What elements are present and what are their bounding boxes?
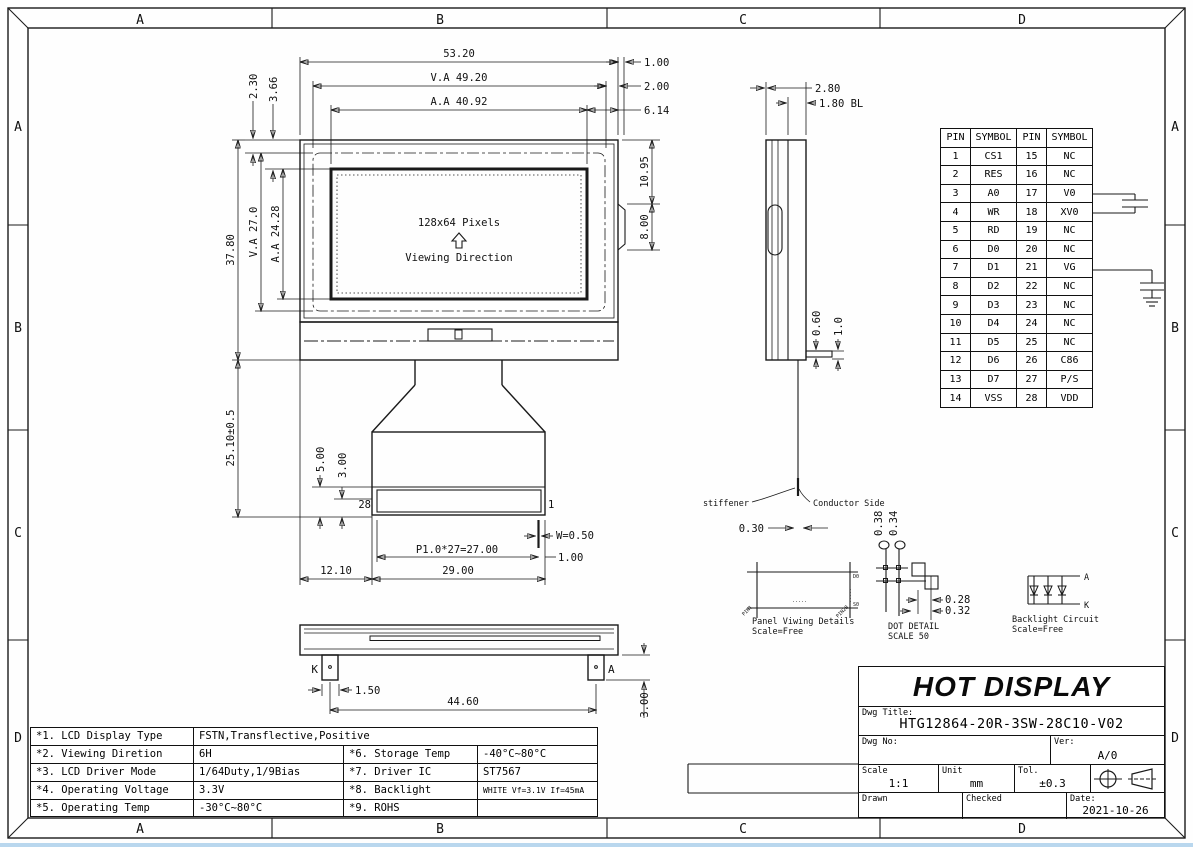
spec-value: FSTN,Transflective,Positive [194, 728, 598, 746]
table-row: 6D020NC [941, 240, 1093, 259]
table-cell: 11 [941, 333, 971, 352]
dim-3: 3.00 [337, 453, 349, 478]
symbol-header: SYMBOL [971, 129, 1017, 148]
table-cell: NC [1047, 221, 1093, 240]
table-cell: XV0 [1047, 203, 1093, 222]
spec-label: *2. Viewing Diretion [31, 745, 194, 763]
table-cell: 16 [1017, 166, 1047, 185]
zone-right-a: A [1171, 120, 1179, 135]
table-row: 8D222NC [941, 277, 1093, 296]
dim-fpc-length: 25.10±0.5 [225, 410, 237, 467]
table-cell: VG [1047, 259, 1093, 278]
table-cell: VSS [971, 389, 1017, 408]
spec-value: -30°C~80°C [194, 799, 344, 817]
table-cell: 14 [941, 389, 971, 408]
scale-label: Scale [862, 766, 888, 776]
panel-dots-bottom: ..... [792, 598, 807, 604]
backlight-circuit-scale: Scale=Free [1012, 625, 1063, 635]
table-cell: 10 [941, 314, 971, 333]
window-bottom-edge [0, 843, 1193, 847]
zone-top-b: B [436, 13, 444, 28]
title-block: HOT DISPLAY Dwg Title: HTG12864-20R-3SW-… [858, 666, 1165, 818]
zone-top-d: D [1018, 13, 1026, 28]
bottom-view: K A 1.50 44.60 3.00 [300, 625, 651, 718]
backlight-cathode-label: K [1084, 601, 1090, 611]
table-cell: NC [1047, 240, 1093, 259]
scale-value: 1:1 [859, 777, 938, 790]
date-value: 2021-10-26 [1067, 804, 1164, 817]
table-cell: NC [1047, 277, 1093, 296]
front-view: 128x64 Pixels Viewing Direction 53.20 1.… [225, 48, 669, 517]
dwg-no-row: Dwg No: Ver: A/0 [859, 736, 1164, 765]
table-cell: 24 [1017, 314, 1047, 333]
zone-bottom-d: D [1018, 822, 1026, 837]
table-row: 1CS115NC [941, 147, 1093, 166]
table-cell: NC [1047, 147, 1093, 166]
table-cell: 1 [941, 147, 971, 166]
zone-left-a: A [14, 120, 22, 135]
table-cell: D5 [971, 333, 1017, 352]
panel-detail-title: Panel Viwing Details [752, 617, 854, 627]
table-cell: NC [1047, 296, 1093, 315]
table-cell: D0 [971, 240, 1017, 259]
table-cell: 8 [941, 277, 971, 296]
tol-value: ±0.3 [1015, 777, 1090, 790]
projection-symbol-icon [1092, 766, 1162, 792]
pin-table-wires [1092, 194, 1164, 306]
pin-header: PIN [941, 129, 971, 148]
anode-label: A [608, 663, 615, 676]
table-cell: D3 [971, 296, 1017, 315]
panel-detail-scale: Scale=Free [752, 627, 803, 637]
table-cell: V0 [1047, 184, 1093, 203]
dim-w: W=0.50 [556, 530, 594, 542]
table-cell: 27 [1017, 370, 1047, 389]
zone-left-d: D [14, 731, 22, 746]
dim-pin-h: 3.00 [639, 692, 651, 717]
zone-left-b: B [14, 321, 22, 336]
panel-tag-bottom: S0 [853, 602, 859, 608]
table-cell: 15 [1017, 147, 1047, 166]
table-row: 9D323NC [941, 296, 1093, 315]
drawing-sheet: A B C D A B C D A B C D A B C D 128x64 P… [0, 0, 1193, 847]
title-block-stubs [688, 764, 858, 793]
table-cell: 12 [941, 352, 971, 371]
dim-pin: 1.50 [355, 685, 380, 697]
spec-label: *4. Operating Voltage [31, 781, 194, 799]
table-cell: 26 [1017, 352, 1047, 371]
zone-bottom-b: B [436, 822, 444, 837]
table-cell: 7 [941, 259, 971, 278]
fpc-connector: 28 1 5.00 3.00 W=0.50 P1.0*27=27.00 1.00… [300, 360, 594, 585]
backlight-circuit-title: Backlight Circuit [1012, 615, 1099, 625]
spec-value: 3.3V [194, 781, 344, 799]
table-cell: WR [971, 203, 1017, 222]
table-cell: 21 [1017, 259, 1047, 278]
dim-aa-height: A.A 24.28 [270, 206, 282, 263]
table-cell: 25 [1017, 333, 1047, 352]
viewing-direction-arrow-icon [452, 233, 466, 248]
specification-table: *1. LCD Display Type FSTN,Transflective,… [30, 727, 598, 817]
spec-value: ST7567 [478, 763, 598, 781]
table-row: 13D727P/S [941, 370, 1093, 389]
table-row: 2RES16NC [941, 166, 1093, 185]
spec-label: *9. ROHS [344, 799, 478, 817]
zone-bottom-a: A [136, 822, 144, 837]
zone-right-b: B [1171, 321, 1179, 336]
table-cell: NC [1047, 314, 1093, 333]
company-name-text: HOT DISPLAY [913, 671, 1110, 703]
spec-label: *3. LCD Driver Mode [31, 763, 194, 781]
table-cell: D1 [971, 259, 1017, 278]
zone-top-c: C [739, 13, 747, 28]
zone-bottom-c: C [739, 822, 747, 837]
table-cell: 2 [941, 166, 971, 185]
spec-row: *4. Operating Voltage 3.3V *8. Backlight… [31, 781, 598, 799]
table-cell: A0 [971, 184, 1017, 203]
table-row: 12D626C86 [941, 352, 1093, 371]
table-cell: RES [971, 166, 1017, 185]
spec-table: *1. LCD Display Type FSTN,Transflective,… [30, 727, 598, 817]
table-cell: D7 [971, 370, 1017, 389]
pin-header: PIN [1017, 129, 1047, 148]
tol-label: Tol. [1018, 766, 1038, 776]
pin-assignment-table: PIN SYMBOL PIN SYMBOL 1CS115NC2RES16NC3A… [940, 128, 1093, 408]
table-cell: 13 [941, 370, 971, 389]
dwg-no-label: Dwg No: [862, 737, 898, 747]
scale-unit-tol-row: Scale 1:1 Unit mm Tol. ±0.3 [859, 765, 1164, 793]
table-cell: D6 [971, 352, 1017, 371]
dim-right-3: 6.14 [644, 105, 669, 117]
dim-pitch: P1.0*27=27.00 [416, 544, 498, 556]
side-view: 2.80 1.80 BL 0.60 1.0 stiffener Conducto… [703, 82, 885, 535]
panel-dots-right: ..... [848, 588, 854, 603]
table-row: 10D424NC [941, 314, 1093, 333]
zone-left-c: C [14, 526, 22, 541]
dim-5: 5.00 [315, 447, 327, 472]
pin1-label: 1 [548, 499, 554, 511]
table-cell: P/S [1047, 370, 1093, 389]
dwg-title-value: HTG12864-20R-3SW-28C10-V02 [859, 716, 1164, 732]
backlight-circuit: A K Backlight Circuit Scale=Free [1012, 573, 1099, 635]
unit-value: mm [939, 777, 1014, 790]
dim-right-2: 2.00 [644, 81, 669, 93]
drawn-checked-date-row: Drawn Checked Date: 2021-10-26 [859, 793, 1164, 819]
spec-value: WHITE Vf=3.1V If=45mA [478, 781, 598, 799]
table-cell: C86 [1047, 352, 1093, 371]
panel-tag-left: PIN1 [741, 605, 754, 618]
dim-aa-width: A.A 40.92 [431, 96, 488, 108]
table-cell: 17 [1017, 184, 1047, 203]
spec-row: *3. LCD Driver Mode 1/64Duty,1/9Bias *7.… [31, 763, 598, 781]
dim-tab-offset: 10.95 [639, 156, 651, 188]
checked-label: Checked [966, 794, 1002, 804]
spec-value: 6H [194, 745, 344, 763]
table-row: 4WR18XV0 [941, 203, 1093, 222]
dot-dim-w2: 0.32 [945, 605, 970, 617]
dot-detail-scale: SCALE 50 [888, 632, 929, 642]
stiffener-label: stiffener [703, 499, 749, 509]
table-cell: D2 [971, 277, 1017, 296]
table-cell: 22 [1017, 277, 1047, 296]
table-cell: RD [971, 221, 1017, 240]
table-row: 3A017V0 [941, 184, 1093, 203]
pin-table: PIN SYMBOL PIN SYMBOL 1CS115NC2RES16NC3A… [940, 128, 1093, 408]
spec-label: *5. Operating Temp [31, 799, 194, 817]
spec-row: *2. Viewing Diretion 6H *6. Storage Temp… [31, 745, 598, 763]
table-cell: 23 [1017, 296, 1047, 315]
table-cell: 9 [941, 296, 971, 315]
backlight-anode-label: A [1084, 573, 1089, 583]
spec-label: *1. LCD Display Type [31, 728, 194, 746]
pin-table-header-row: PIN SYMBOL PIN SYMBOL [941, 129, 1093, 148]
cathode-label: K [311, 663, 318, 676]
spec-row: *5. Operating Temp -30°C~80°C *9. ROHS [31, 799, 598, 817]
spec-label: *8. Backlight [344, 781, 478, 799]
table-cell: NC [1047, 333, 1093, 352]
panel-viewing-detail: D0 ..... S0 ..... PIN1 PIN28 Panel Viwin… [741, 562, 859, 637]
table-row: 5RD19NC [941, 221, 1093, 240]
table-cell: 18 [1017, 203, 1047, 222]
unit-label: Unit [942, 766, 962, 776]
dot-dim-h2: 0.34 [888, 511, 900, 536]
ver-value: A/0 [1051, 749, 1164, 762]
dot-detail-title: DOT DETAIL [888, 622, 939, 632]
dim-pin-w: 1.0 [833, 317, 845, 336]
table-row: 11D525NC [941, 333, 1093, 352]
dwg-title-row: Dwg Title: HTG12864-20R-3SW-28C10-V02 [859, 707, 1164, 736]
drawn-label: Drawn [862, 794, 888, 804]
spec-row: *1. LCD Display Type FSTN,Transflective,… [31, 728, 598, 746]
dim-va-width: V.A 49.20 [431, 72, 488, 84]
zone-right-d: D [1171, 731, 1179, 746]
dim-fpc-t: 0.30 [739, 523, 764, 535]
table-cell: 3 [941, 184, 971, 203]
table-cell: 5 [941, 221, 971, 240]
table-cell: VDD [1047, 389, 1093, 408]
spec-value: 1/64Duty,1/9Bias [194, 763, 344, 781]
table-cell: NC [1047, 166, 1093, 185]
dim-tab-height: 8.00 [639, 214, 651, 239]
dim-1: 1.00 [558, 552, 583, 564]
conductor-side-label: Conductor Side [813, 499, 885, 509]
company-name: HOT DISPLAY [859, 667, 1164, 707]
date-label: Date: [1070, 794, 1096, 804]
dim-va-height: V.A 27.0 [248, 207, 260, 258]
table-cell: 28 [1017, 389, 1047, 408]
dim-thickness: 2.80 [815, 83, 840, 95]
dim-span: 44.60 [447, 696, 479, 708]
table-cell: CS1 [971, 147, 1017, 166]
spec-label: *6. Storage Temp [344, 745, 478, 763]
spec-label: *7. Driver IC [344, 763, 478, 781]
pin28-label: 28 [358, 499, 371, 511]
dot-dim-h1: 0.38 [873, 511, 885, 536]
spec-value: -40°C~80°C [478, 745, 598, 763]
dim-height: 37.80 [225, 234, 237, 266]
table-row: 14VSS28VDD [941, 389, 1093, 408]
pixels-label: 128x64 Pixels [418, 217, 500, 229]
ver-label: Ver: [1054, 737, 1074, 747]
dot-detail: 0.28 0.32 0.38 0.34 DOT DETAIL SCALE 50 [873, 511, 970, 642]
dim-right-1: 1.00 [644, 57, 669, 69]
viewing-direction-label: Viewing Direction [405, 252, 512, 264]
table-cell: 6 [941, 240, 971, 259]
dim-top-left-1: 2.30 [248, 74, 260, 99]
zone-top-a: A [136, 13, 144, 28]
table-row: 7D121VG [941, 259, 1093, 278]
dim-bl: 1.80 BL [819, 98, 863, 110]
table-cell: 20 [1017, 240, 1047, 259]
dim-total: 29.00 [442, 565, 474, 577]
dim-left: 12.10 [320, 565, 352, 577]
dim-pin-t: 0.60 [811, 311, 823, 336]
table-cell: 19 [1017, 221, 1047, 240]
table-cell: 4 [941, 203, 971, 222]
panel-tag-top: D0 [853, 574, 859, 580]
dim-top-left-2: 3.66 [268, 77, 280, 102]
spec-value [478, 799, 598, 817]
table-cell: D4 [971, 314, 1017, 333]
symbol-header: SYMBOL [1047, 129, 1093, 148]
zone-right-c: C [1171, 526, 1179, 541]
dim-width: 53.20 [443, 48, 475, 60]
